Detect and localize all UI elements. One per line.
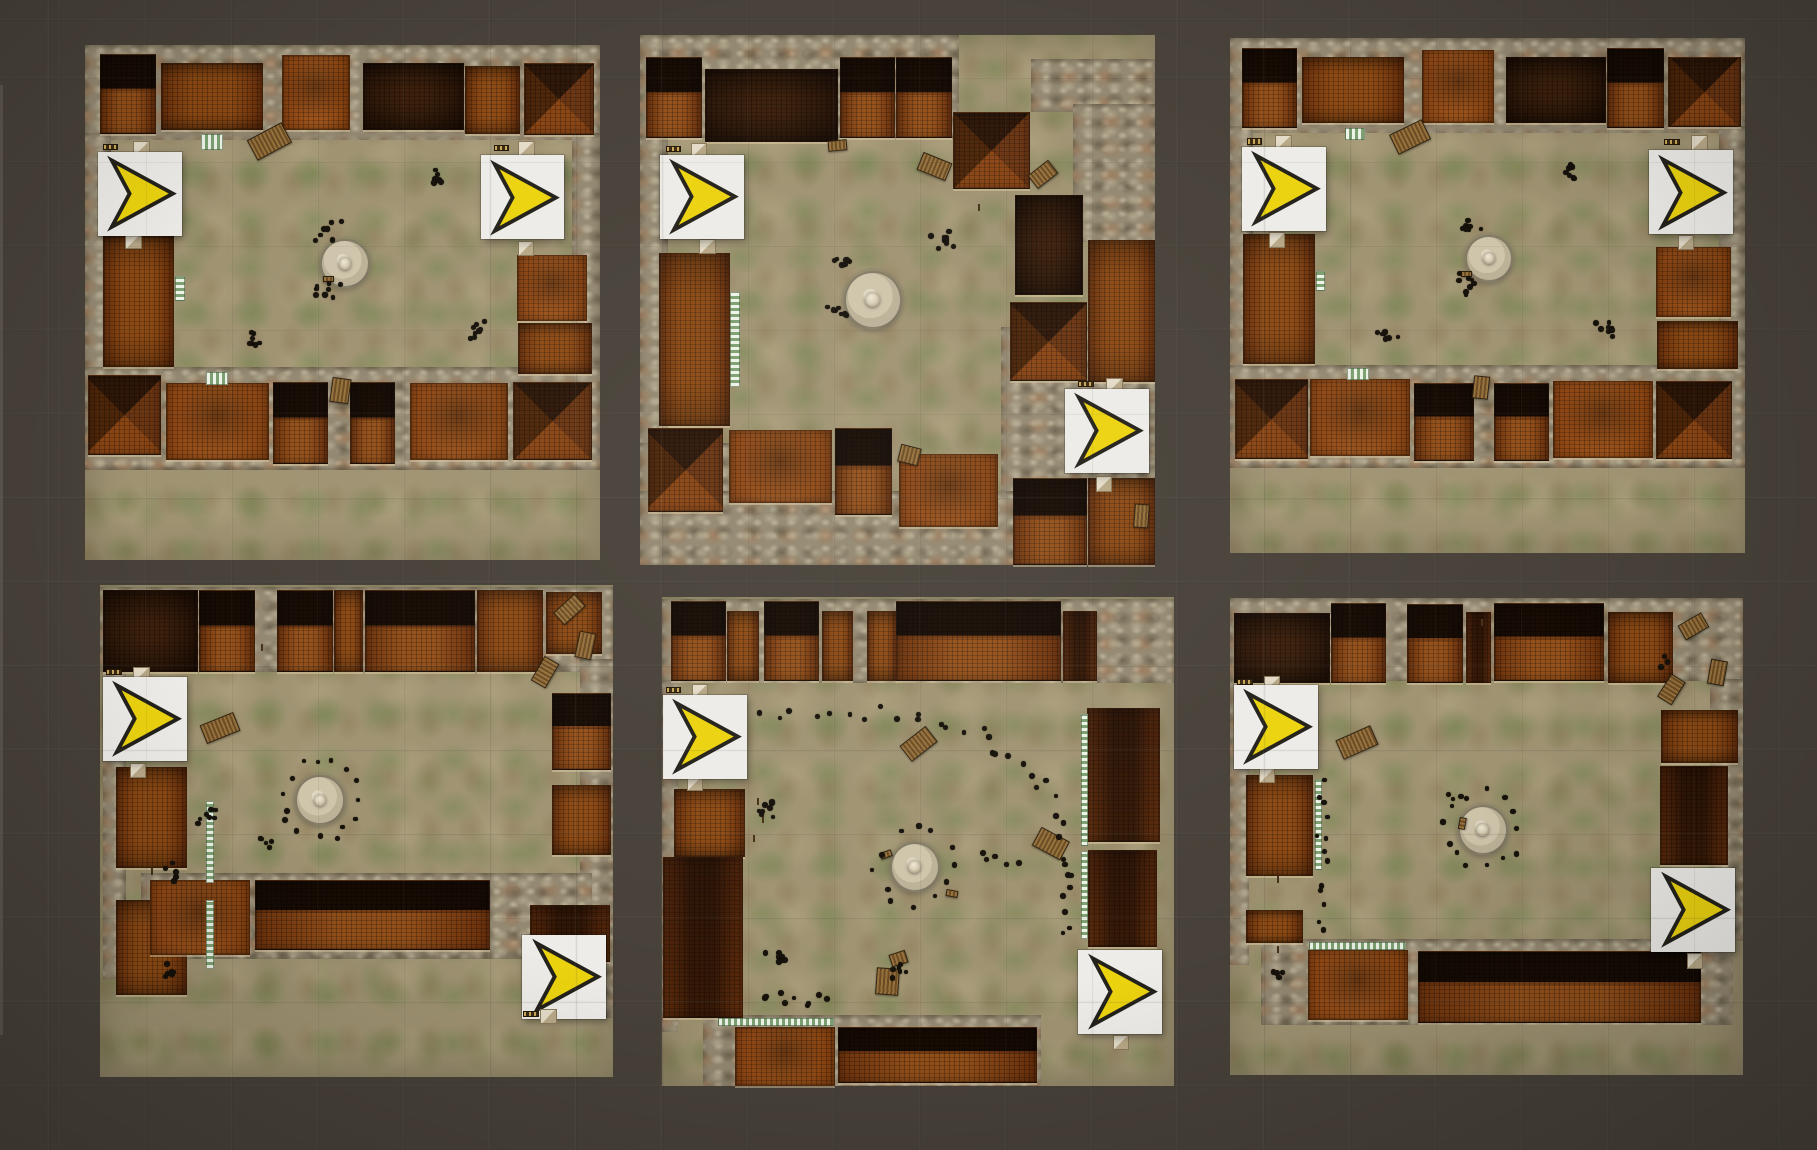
villager-dot	[848, 712, 853, 717]
building-roof-reddark	[1063, 611, 1097, 681]
villager-dot	[1043, 778, 1048, 783]
stone-path	[1073, 104, 1155, 242]
villager-dot	[284, 808, 290, 814]
building-roof-hip	[1010, 302, 1087, 382]
direction-arrow-icon	[663, 158, 740, 235]
direction-marker[interactable]	[1078, 950, 1162, 1034]
direction-arrow-icon	[106, 680, 183, 757]
villager-dot	[1276, 975, 1282, 981]
building-roof-hip	[1668, 57, 1741, 127]
crate	[762, 816, 764, 823]
villager-dot	[438, 179, 444, 185]
village-1[interactable]	[85, 45, 600, 560]
building-roof-tile	[1422, 50, 1494, 123]
market-stall	[1081, 851, 1088, 939]
villager-dot	[339, 219, 344, 224]
gate-hut	[518, 241, 534, 256]
building-roof-tile	[729, 430, 832, 503]
wooden-cart	[875, 967, 899, 996]
villager-dot	[1004, 862, 1009, 867]
building-roof-dark	[1506, 57, 1606, 123]
building-roof-hip	[953, 112, 1030, 189]
building-roof-tile	[410, 383, 508, 460]
villager-dot	[928, 233, 934, 239]
direction-arrow-icon	[1245, 150, 1322, 227]
wooden-cart	[1472, 375, 1491, 399]
direction-arrow-icon	[1237, 688, 1314, 765]
gate-hut	[1687, 953, 1703, 968]
building-roof-dark	[1015, 195, 1083, 295]
building-roof-halfdark	[1407, 604, 1463, 683]
villager-dot	[842, 311, 848, 317]
building-roof-halfdark	[1331, 603, 1386, 683]
building-roof-halfdark	[100, 54, 155, 134]
villager-dot	[247, 341, 252, 346]
villager-dot	[170, 861, 175, 866]
market-stall	[175, 276, 185, 302]
villager-dot	[952, 862, 957, 867]
villager-dot	[982, 726, 987, 731]
villager-dot	[1021, 761, 1026, 766]
building-roof-tile	[1308, 950, 1408, 1020]
villager-dot	[1324, 836, 1329, 841]
direction-arrow-icon	[666, 698, 743, 775]
villager-dot	[1607, 320, 1611, 324]
wooden-cart	[828, 139, 847, 151]
building-roof-hip	[1656, 381, 1731, 459]
market-stall	[1316, 271, 1325, 291]
villager-dot	[207, 815, 212, 820]
building-roof-red	[161, 63, 263, 130]
villager-dot	[344, 767, 349, 772]
villager-dot	[950, 845, 955, 850]
villager-dot	[1054, 794, 1058, 798]
villager-dot	[1463, 226, 1469, 232]
crate	[1481, 619, 1483, 626]
villager-dot	[1606, 325, 1611, 330]
villager-dot	[1321, 927, 1326, 932]
villager-dot	[1610, 334, 1615, 339]
villager-dot	[878, 704, 883, 709]
wooden-cart	[330, 377, 352, 404]
villager-dot	[824, 996, 830, 1002]
direction-marker[interactable]	[98, 152, 182, 236]
villager-dot	[329, 220, 333, 224]
villager-dot	[1053, 813, 1059, 819]
building-roof-halfdark	[1607, 48, 1664, 128]
building-roof-red	[477, 590, 543, 672]
villager-dot	[1325, 815, 1329, 819]
villager-dot	[269, 839, 274, 844]
building-roof-halfdark	[764, 601, 819, 681]
direction-marker[interactable]	[660, 155, 744, 239]
villager-dot	[482, 319, 487, 324]
villager-dot	[843, 257, 849, 263]
direction-marker[interactable]	[1649, 150, 1733, 234]
villager-dot	[322, 292, 328, 298]
fountain	[844, 271, 902, 329]
direction-arrow-icon	[1082, 953, 1159, 1030]
direction-marker[interactable]	[522, 935, 606, 1019]
villager-dot	[330, 237, 335, 242]
fountain	[1458, 805, 1508, 855]
building-roof-reddark	[1088, 850, 1157, 947]
villager-dot	[1056, 834, 1061, 839]
gate-sign	[666, 687, 681, 693]
village-3[interactable]	[1230, 38, 1745, 553]
building-roof-red	[674, 789, 745, 857]
villager-dot	[839, 262, 844, 267]
building-roof-tile	[1310, 379, 1410, 456]
villager-dot	[1447, 841, 1453, 847]
gate-sign	[494, 145, 509, 151]
gate-hut	[1113, 1035, 1129, 1050]
building-roof-tile	[282, 55, 350, 130]
direction-arrow-icon	[101, 155, 178, 232]
village-4[interactable]	[100, 585, 613, 1077]
villager-dot	[1034, 785, 1039, 790]
building-roof-tile	[150, 880, 250, 955]
building-roof-halfdark	[273, 382, 328, 464]
villager-dot	[1005, 753, 1011, 759]
market-stall	[206, 900, 214, 969]
building-roof-red	[1246, 775, 1313, 876]
villager-dot	[165, 971, 171, 977]
building-roof-red	[1243, 234, 1315, 364]
villager-dot	[1325, 858, 1331, 864]
market-stall	[1345, 128, 1365, 140]
market-stall	[1347, 368, 1369, 380]
building-roof-halfdark	[1414, 383, 1474, 461]
villager-dot	[1485, 786, 1490, 791]
gate-sign	[1247, 138, 1262, 144]
building-roof-halfdark	[255, 880, 490, 950]
villager-dot	[827, 711, 832, 716]
building-roof-halfdark	[1418, 951, 1701, 1023]
building-roof-red	[1608, 612, 1673, 683]
villager-dot	[1321, 800, 1326, 805]
gate-hut	[699, 239, 715, 254]
building-roof-halfdark	[838, 1027, 1037, 1083]
villager-dot	[944, 879, 950, 885]
villager-dot	[911, 905, 916, 910]
fountain	[1465, 235, 1512, 282]
direction-marker[interactable]	[1234, 685, 1318, 769]
building-roof-red	[518, 323, 593, 373]
building-roof-red	[822, 611, 854, 681]
villager-dot	[1510, 809, 1515, 814]
building-roof-red	[1088, 240, 1155, 383]
villager-dot	[257, 341, 261, 345]
villager-dot	[212, 816, 216, 820]
villager-dot	[944, 240, 950, 246]
villager-dot	[885, 887, 891, 893]
direction-marker[interactable]	[103, 677, 187, 761]
villager-dot	[1440, 819, 1445, 824]
building-roof-halfdark	[277, 590, 333, 672]
villager-dot	[780, 954, 785, 959]
villager-dot	[763, 994, 768, 999]
market-stall	[1081, 714, 1088, 846]
building-roof-halfdark	[1494, 603, 1604, 681]
building-roof-dark	[705, 69, 838, 142]
direction-marker[interactable]	[1651, 868, 1735, 952]
gate-sign	[1078, 381, 1093, 387]
market-stall	[730, 292, 740, 387]
direction-arrow-icon	[1655, 871, 1732, 948]
villager-dot	[318, 833, 324, 839]
building-roof-hip	[88, 375, 162, 455]
building-roof-red	[116, 767, 187, 868]
crate	[978, 204, 980, 211]
direction-marker[interactable]	[1242, 147, 1326, 231]
villager-dot	[1067, 926, 1072, 931]
villager-dot	[335, 836, 340, 841]
gate-sign	[1664, 139, 1679, 145]
fountain	[890, 842, 940, 892]
wooden-cart	[1134, 504, 1151, 529]
market-stall	[201, 134, 223, 150]
building-roof-reddark	[1660, 766, 1728, 865]
direction-marker[interactable]	[663, 695, 747, 779]
building-roof-hip	[1235, 379, 1308, 459]
fountain	[295, 775, 344, 824]
building-roof-red	[1661, 710, 1738, 763]
gate-sign	[523, 1011, 538, 1017]
building-roof-tile	[517, 255, 588, 321]
building-roof-tile	[1656, 247, 1731, 317]
building-roof-reddark	[663, 857, 743, 1018]
villager-dot	[831, 307, 836, 312]
market-stall	[718, 1018, 834, 1027]
villager-dot	[894, 716, 900, 722]
direction-arrow-icon	[484, 159, 561, 236]
villager-dot	[1317, 795, 1322, 800]
building-roof-tile	[1553, 381, 1653, 458]
crate	[1277, 876, 1279, 883]
building-roof-dark	[103, 590, 198, 672]
villager-dot	[1662, 654, 1667, 659]
village-2[interactable]	[640, 35, 1155, 565]
villager-dot	[1068, 873, 1073, 878]
building-roof-red	[1302, 57, 1403, 123]
crate	[151, 868, 153, 875]
villager-dot	[1067, 885, 1072, 890]
villager-dot	[294, 828, 300, 834]
villager-dot	[1465, 218, 1471, 224]
villager-dot	[195, 821, 200, 826]
gate-hut	[1259, 768, 1275, 783]
villager-dot	[331, 295, 336, 300]
villager-dot	[1322, 778, 1326, 782]
villager-dot	[353, 817, 357, 821]
villager-dot	[1514, 851, 1520, 857]
building-roof-red	[103, 236, 174, 367]
building-roof-reddark	[1466, 612, 1491, 683]
gate-hut	[125, 234, 141, 249]
villager-dot	[171, 878, 177, 884]
building-roof-red	[334, 590, 363, 672]
villager-dot	[778, 990, 784, 996]
direction-arrow-icon	[1652, 154, 1729, 231]
building-roof-halfdark	[1013, 478, 1086, 565]
villager-dot	[916, 823, 921, 828]
building-roof-halfdark	[365, 590, 475, 672]
building-roof-halfdark	[552, 693, 612, 770]
building-roof-hip	[524, 63, 594, 135]
crate	[757, 798, 759, 805]
building-roof-hip	[648, 428, 723, 512]
villager-dot	[946, 229, 951, 234]
villager-dot	[1062, 862, 1067, 867]
building-roof-halfdark	[840, 57, 895, 138]
villager-dot	[1450, 804, 1454, 808]
village-5[interactable]	[662, 597, 1174, 1086]
villager-dot	[1280, 970, 1285, 975]
direction-marker[interactable]	[1065, 389, 1149, 473]
direction-arrow-icon	[526, 938, 603, 1015]
gate-hut	[1096, 476, 1112, 491]
building-roof-hip	[513, 382, 591, 460]
window-edge-highlight	[0, 85, 3, 1035]
villager-dot	[1322, 902, 1326, 906]
building-roof-red	[465, 66, 520, 134]
crate	[753, 835, 755, 842]
gate-sign	[106, 669, 121, 675]
gate-sign	[103, 144, 118, 150]
villager-dot	[986, 734, 991, 739]
villager-dot	[890, 967, 895, 972]
villager-dot	[806, 1001, 811, 1006]
building-roof-dark	[1234, 613, 1330, 683]
villager-dot	[267, 845, 272, 850]
building-roof-dark	[363, 63, 463, 130]
building-roof-halfdark	[896, 57, 951, 138]
gate-sign	[666, 146, 681, 152]
villager-dot	[313, 238, 318, 243]
villager-dot	[164, 961, 170, 967]
direction-arrow-icon	[1068, 392, 1145, 469]
villager-dot	[825, 305, 830, 310]
villager-dot	[1456, 278, 1461, 283]
building-roof-red	[1246, 910, 1303, 943]
villager-dot	[862, 717, 867, 722]
gate-hut	[130, 763, 146, 778]
building-roof-halfdark	[199, 590, 255, 672]
villager-dot	[782, 1000, 788, 1006]
villager-dot	[329, 758, 333, 762]
villager-dot	[888, 898, 893, 903]
building-roof-halfdark	[1494, 383, 1549, 461]
building-roof-halfdark	[671, 601, 726, 681]
villager-dot	[476, 328, 481, 333]
market-stall	[206, 372, 228, 385]
building-roof-red	[552, 785, 612, 855]
villager-dot	[763, 950, 768, 955]
villager-dot	[769, 799, 775, 805]
building-roof-red	[1657, 321, 1737, 369]
gate-hut	[1678, 235, 1694, 250]
villager-dot	[915, 717, 921, 723]
villager-dot	[1318, 888, 1323, 893]
gate-hut	[540, 1009, 556, 1024]
villager-dot	[1458, 794, 1463, 799]
village-6[interactable]	[1230, 598, 1743, 1075]
building-roof-halfdark	[835, 428, 892, 515]
villager-dot	[815, 714, 820, 719]
building-roof-halfdark	[350, 382, 395, 464]
crate	[261, 644, 263, 651]
building-roof-halfdark	[896, 601, 1061, 681]
villager-dot	[354, 778, 359, 783]
villager-dot	[1396, 335, 1400, 339]
villager-dot	[836, 306, 840, 310]
gate-hut	[1269, 232, 1285, 247]
villager-dot	[1455, 850, 1459, 854]
villager-dot	[992, 854, 997, 859]
villager-dot	[1060, 893, 1066, 899]
direction-marker[interactable]	[481, 155, 565, 239]
villager-dot	[890, 975, 896, 981]
building-roof-tile	[166, 383, 270, 460]
villager-dot	[786, 708, 792, 714]
villager-dot	[899, 829, 903, 833]
villager-dot	[757, 710, 763, 716]
villager-dot	[1029, 773, 1035, 779]
building-roof-halfdark	[646, 57, 702, 138]
villager-dot	[1658, 664, 1663, 669]
building-roof-tile	[735, 1027, 835, 1086]
villager-dot	[1061, 821, 1066, 826]
villager-dot	[1570, 164, 1576, 170]
villager-dot	[163, 866, 168, 871]
building-roof-red	[867, 611, 897, 681]
villager-dot	[472, 335, 477, 340]
crate	[1277, 946, 1279, 953]
building-roof-reddark	[1087, 708, 1160, 842]
villager-dot	[338, 282, 343, 287]
market-stall	[1309, 942, 1406, 950]
villager-dot	[816, 992, 822, 998]
building-roof-halfdark	[1242, 48, 1297, 128]
gate-hut	[1691, 135, 1707, 150]
villager-dot	[898, 962, 903, 967]
villager-dot	[315, 284, 319, 288]
editor-scene-canvas	[0, 0, 1817, 1150]
building-roof-red	[727, 611, 759, 681]
market-stall	[1315, 779, 1322, 870]
building-roof-red	[659, 253, 731, 426]
villager-dot	[213, 808, 218, 813]
villager-dot	[1016, 860, 1022, 866]
